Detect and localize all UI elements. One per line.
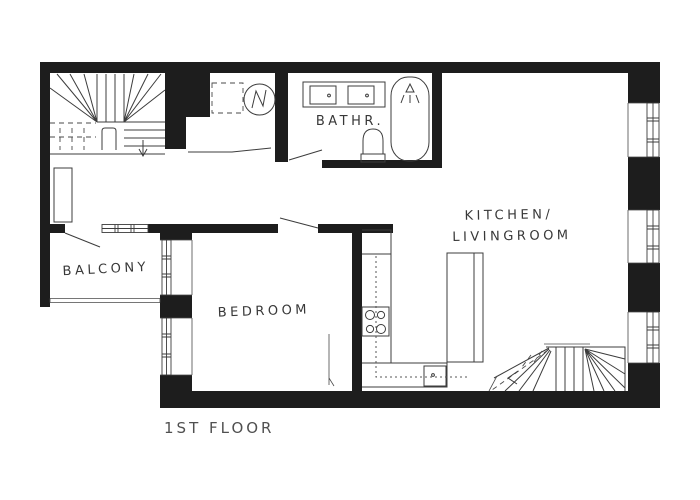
wall-bedroom-left-pier: [160, 295, 192, 318]
window-reveal: [628, 312, 647, 363]
kitchen-label-line1: KITCHEN/: [464, 207, 553, 224]
kitchen-sink: [424, 366, 446, 386]
labels: BALCONY BEDROOM BATHR. KITCHEN/ LIVINGRO…: [62, 114, 572, 437]
counter-edge-dotted: [376, 256, 468, 377]
balcony-railing: [50, 299, 160, 303]
stair-treads-vertical: [97, 74, 124, 122]
bedroom-label: BEDROOM: [217, 302, 310, 320]
toilet: [361, 129, 385, 162]
wall-bedroom-kitchen: [352, 233, 362, 391]
window-balcony: [102, 225, 148, 233]
window-bedroom-2: [162, 318, 171, 375]
wall-bedroom-top: [318, 224, 393, 233]
wall-bedroom-top: [160, 224, 278, 233]
stair-walk-line: [492, 350, 548, 390]
kitchen-fixtures: [362, 230, 483, 387]
stair-winders-left: [494, 348, 551, 391]
wall-nook-bathroom: [275, 73, 288, 162]
balcony-label: BALCONY: [62, 260, 149, 280]
kitchen-label-line2: LIVINGROOM: [452, 228, 572, 245]
bathroom-label: BATHR.: [316, 114, 384, 129]
stair-treads-vertical: [556, 347, 583, 391]
floor-plan-canvas: BALCONY BEDROOM BATHR. KITCHEN/ LIVINGRO…: [0, 0, 700, 500]
window-reveal: [628, 210, 647, 263]
wall-right-pier: [628, 263, 660, 312]
bathtub: [391, 77, 429, 161]
wall-balcony-stub: [148, 224, 160, 233]
wall-stair-nook: [165, 117, 186, 149]
floor-plan-drawing: BALCONY BEDROOM BATHR. KITCHEN/ LIVINGRO…: [0, 0, 700, 500]
window-reveal: [628, 103, 647, 157]
window-bedroom-1: [162, 240, 171, 295]
wall-stair-nook: [165, 73, 210, 117]
bedroom-wardrobe-line: [329, 334, 334, 386]
wall-right-pier: [628, 363, 660, 408]
stair-treads-horizontal: [124, 130, 165, 146]
wall-right-pier: [628, 157, 660, 210]
shower-dashed-square: [212, 83, 243, 113]
hall-closet: [54, 168, 72, 222]
wall-bathroom-kitchen: [432, 62, 442, 168]
door-balcony: [65, 233, 100, 247]
kitchen-counter: [362, 230, 447, 387]
wall-top: [40, 62, 660, 73]
wall-right-pier: [628, 62, 660, 103]
washing-machine-icon: [244, 84, 275, 115]
window-right-1: [647, 103, 659, 157]
wall-left: [40, 62, 50, 307]
wall-bottom: [160, 391, 660, 408]
shower-head-icon: [401, 84, 419, 103]
staircase-lower: [489, 344, 625, 391]
utility-nook: [212, 83, 275, 115]
stair-newel: [102, 128, 116, 150]
stair-fan-left: [50, 74, 97, 122]
stair-fan-right: [585, 349, 625, 391]
kitchen-island: [447, 253, 483, 362]
wall-bathroom-bottom: [322, 160, 442, 168]
sink-right: [348, 86, 374, 104]
wall-balcony-stub: [50, 224, 65, 233]
staircase-upper: [50, 74, 165, 156]
door-nook: [188, 148, 271, 152]
wall-bedroom-left-pier: [160, 375, 192, 395]
window-right-2: [647, 210, 659, 263]
door-bedroom: [280, 218, 318, 228]
stair-fan-right: [124, 74, 165, 122]
door-bathroom: [289, 150, 322, 160]
sink-left: [310, 86, 336, 104]
stair-cut-line: [50, 123, 96, 150]
floor-title: 1ST FLOOR: [164, 419, 274, 437]
window-right-3: [647, 312, 659, 363]
